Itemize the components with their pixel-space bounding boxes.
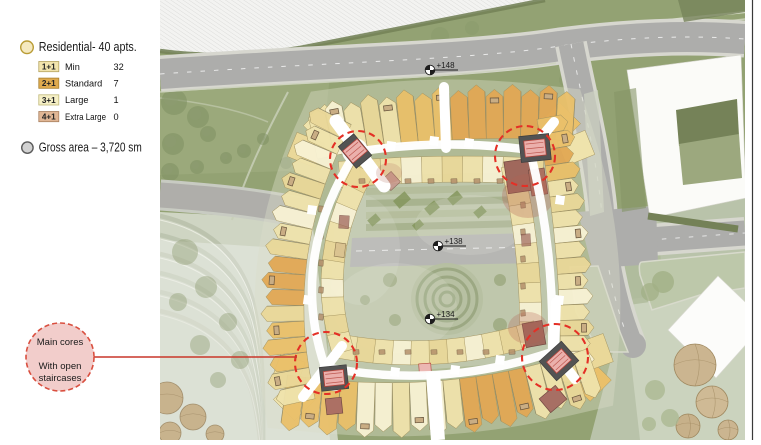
svg-text:32: 32 (114, 62, 124, 72)
svg-text:staircases: staircases (39, 373, 82, 384)
svg-text:1: 1 (114, 95, 119, 105)
svg-text:7: 7 (114, 78, 119, 88)
svg-text:4+1: 4+1 (42, 113, 56, 122)
svg-text:3+1: 3+1 (42, 96, 56, 105)
svg-text:Extra Large: Extra Large (65, 112, 106, 122)
svg-text:Residential- 40 apts.: Residential- 40 apts. (39, 40, 137, 54)
svg-text:Main cores: Main cores (37, 337, 84, 348)
svg-text:0: 0 (114, 112, 119, 122)
svg-text:Large: Large (65, 95, 89, 105)
svg-text:Standard: Standard (65, 78, 102, 88)
svg-text:2+1: 2+1 (42, 79, 56, 88)
svg-text:With open: With open (39, 361, 82, 372)
svg-text:1+1: 1+1 (42, 63, 56, 72)
svg-text:Min: Min (65, 62, 80, 72)
svg-text:Gross area – 3,720 sm: Gross area – 3,720 sm (39, 140, 142, 154)
